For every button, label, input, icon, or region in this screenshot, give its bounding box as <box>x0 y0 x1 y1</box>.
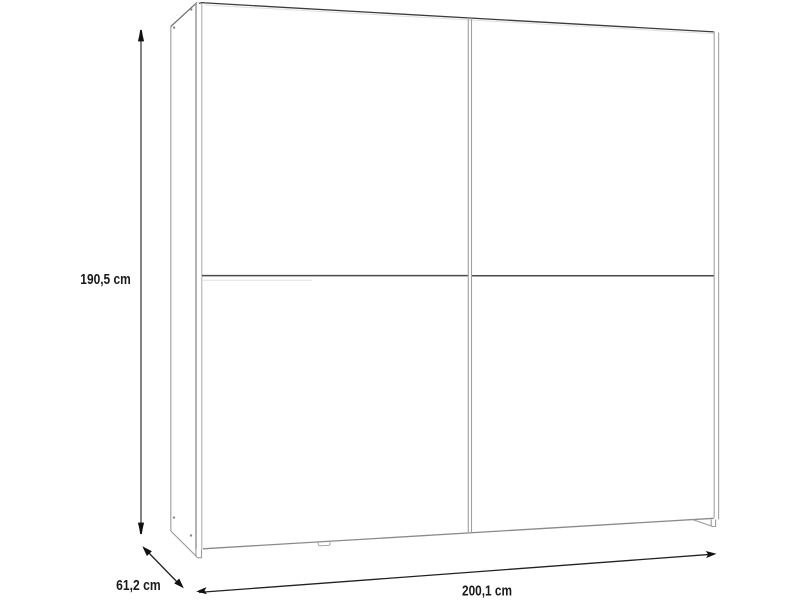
svg-text:190,5 cm: 190,5 cm <box>80 271 131 288</box>
svg-text:61,2 cm: 61,2 cm <box>116 577 161 594</box>
svg-text:200,1 cm: 200,1 cm <box>462 583 512 600</box>
